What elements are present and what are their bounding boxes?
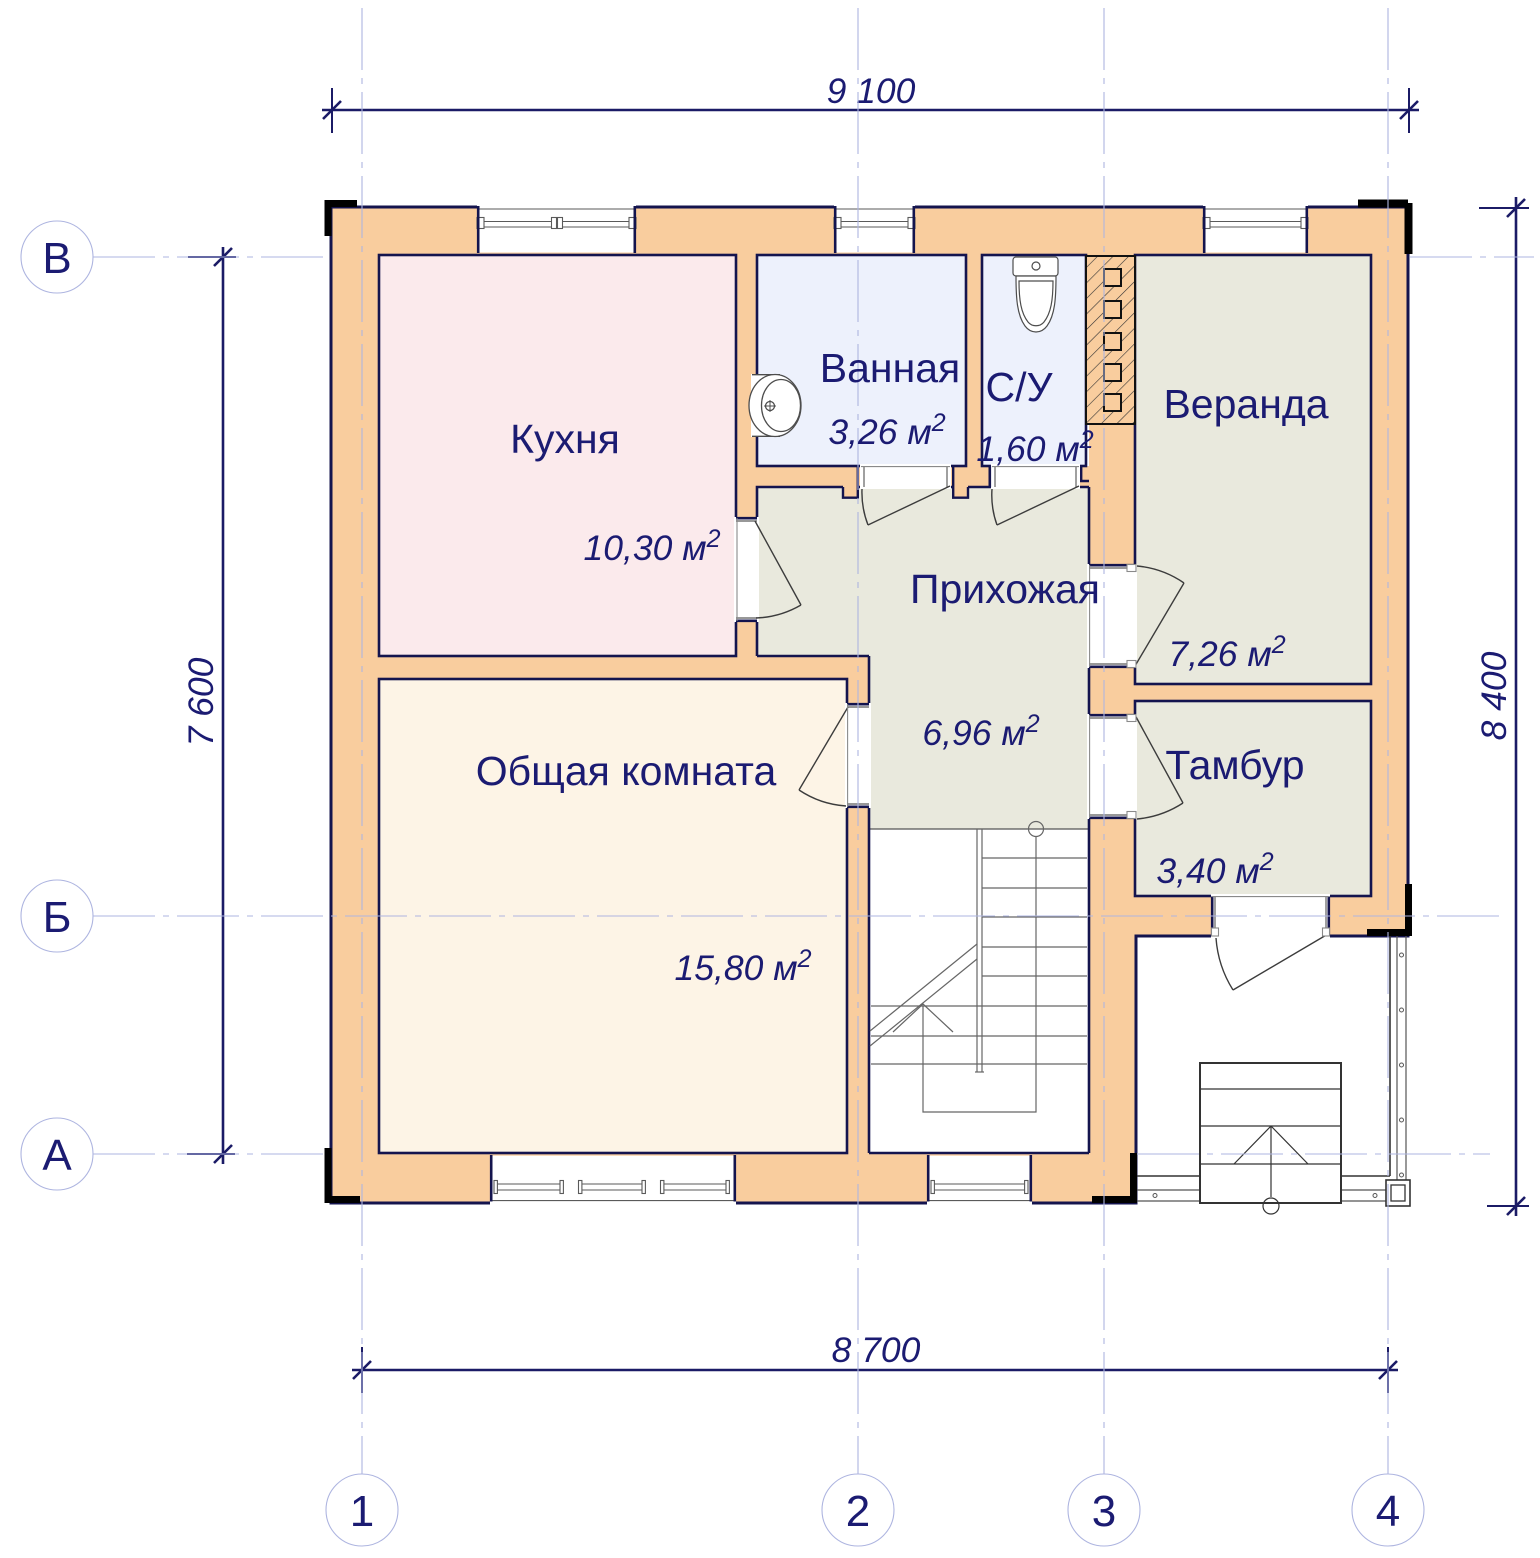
svg-text:1,60 м2: 1,60 м2 xyxy=(976,426,1093,469)
svg-text:9 100: 9 100 xyxy=(827,71,916,111)
svg-text:3,26 м2: 3,26 м2 xyxy=(828,409,945,452)
svg-text:6,96 м2: 6,96 м2 xyxy=(922,710,1039,753)
svg-text:Кухня: Кухня xyxy=(510,416,620,462)
svg-text:3,40 м2: 3,40 м2 xyxy=(1156,848,1273,891)
svg-text:Веранда: Веранда xyxy=(1163,381,1328,427)
svg-text:8 700: 8 700 xyxy=(832,1330,921,1370)
svg-text:1: 1 xyxy=(350,1487,374,1536)
svg-text:Б: Б xyxy=(43,893,72,942)
svg-text:С/У: С/У xyxy=(985,364,1053,410)
svg-text:Ванная: Ванная xyxy=(820,345,960,391)
svg-text:7,26 м2: 7,26 м2 xyxy=(1168,631,1285,674)
svg-text:15,80 м2: 15,80 м2 xyxy=(675,945,812,988)
svg-text:4: 4 xyxy=(1376,1487,1400,1536)
svg-text:В: В xyxy=(42,234,71,283)
svg-text:10,30 м2: 10,30 м2 xyxy=(584,525,721,568)
svg-text:Общая комната: Общая комната xyxy=(476,748,777,794)
svg-text:8 400: 8 400 xyxy=(1474,651,1514,740)
svg-text:2: 2 xyxy=(846,1487,870,1536)
svg-text:Прихожая: Прихожая xyxy=(910,566,1100,612)
svg-text:Тамбур: Тамбур xyxy=(1165,742,1304,788)
svg-text:3: 3 xyxy=(1092,1487,1116,1536)
svg-text:7 600: 7 600 xyxy=(181,657,221,746)
svg-text:А: А xyxy=(42,1131,72,1180)
